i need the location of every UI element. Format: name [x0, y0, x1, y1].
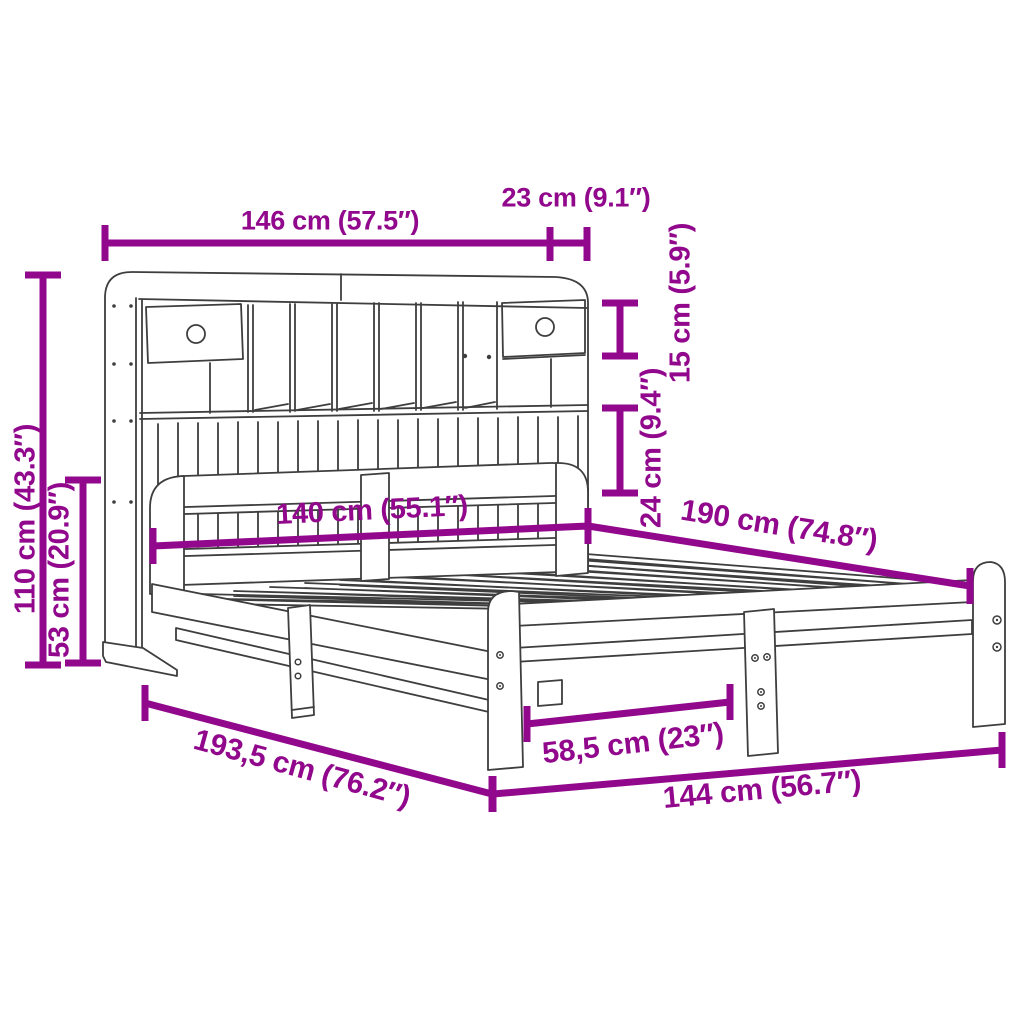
dimension-line-upper-shelf-height	[602, 303, 638, 356]
dimension-diagram: 146 cm (57.5″) 23 cm (9.1″) 15 cm (5.9″)…	[0, 0, 1024, 1024]
dim-label-total-width: 146 cm (57.5″)	[241, 208, 419, 235]
dimension-lines	[0, 0, 1024, 1024]
dim-label-total-height: 110 cm (43.3″)	[12, 424, 41, 614]
dim-label-headboard-depth: 23 cm (9.1″)	[502, 185, 651, 212]
dimension-line-lower-shelf-height	[602, 408, 638, 493]
dim-label-upper-shelf-height: 15 cm (5.9″)	[667, 223, 696, 383]
dim-label-lower-shelf-height: 24 cm (9.4″)	[638, 368, 667, 528]
dim-label-frame-height: 53 cm (20.9″)	[46, 482, 75, 658]
